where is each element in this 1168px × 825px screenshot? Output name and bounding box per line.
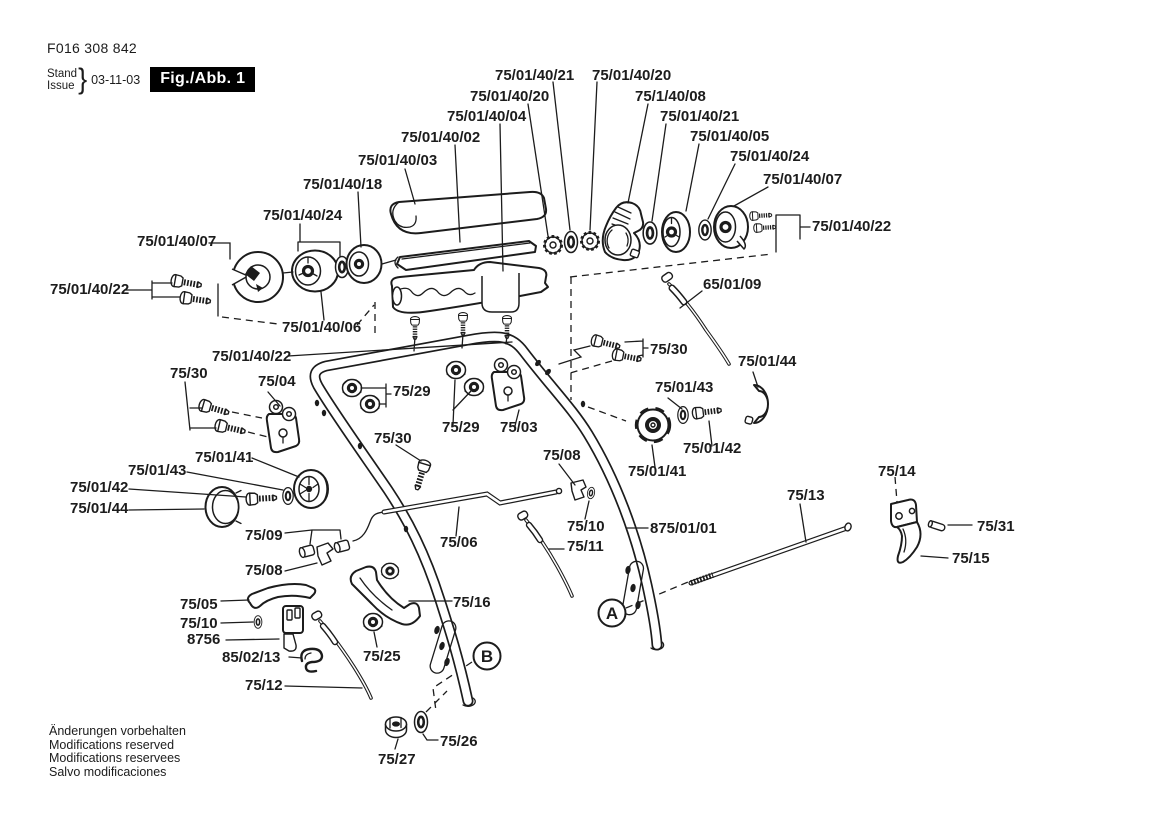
cam-lever-75-1-40-08 xyxy=(603,202,643,260)
part-label: 75/01/40/05 xyxy=(690,128,769,145)
part-label: 75/01/43 xyxy=(128,462,186,479)
part-label: 85/02/13 xyxy=(222,649,280,666)
cap-75-01-44-right xyxy=(745,385,768,424)
part-label: 75/25 xyxy=(363,648,401,665)
end-pulley-75-01-40-07b xyxy=(714,206,748,249)
svg-text:A: A xyxy=(606,604,618,623)
part-label: 75/01/41 xyxy=(195,449,253,466)
footer-line-fr: Modifications reservees xyxy=(49,752,186,766)
part-label: 75/01/40/03 xyxy=(358,152,437,169)
part-label: 75/03 xyxy=(500,419,538,436)
ring-75-10-left xyxy=(254,616,262,629)
part-label: 75/01/42 xyxy=(70,479,128,496)
part-label: 75/01/44 xyxy=(70,500,129,517)
screw-75-01-40-22-left xyxy=(170,274,202,291)
knob-75-01-41-right xyxy=(637,409,670,442)
knob-75-01-41-left xyxy=(294,470,328,508)
cap-75-01-44-left xyxy=(206,487,242,527)
washer-75-01-40-24b xyxy=(699,220,711,240)
part-label: 75/06 xyxy=(440,534,478,551)
roller-75-01-40-05 xyxy=(662,212,690,252)
part-label: 75/30 xyxy=(650,341,688,358)
part-label: 65/01/09 xyxy=(703,276,761,293)
part-label: 75/01/41 xyxy=(628,463,686,480)
washer-75-26 xyxy=(415,712,428,733)
footer-line-en: Modifications reserved xyxy=(49,739,186,753)
part-label: 75/31 xyxy=(977,518,1015,535)
part-label: 75/01/40/24 xyxy=(263,207,343,224)
part-label: 75/01/44 xyxy=(738,353,797,370)
screw-75-01-40-22-left2 xyxy=(179,291,211,307)
screw-75-01-40-22-a xyxy=(411,317,420,340)
view-marker-A: A xyxy=(599,600,626,627)
screw-75-01-40-22-r1 xyxy=(750,211,772,221)
footer-line-es: Salvo modificaciones xyxy=(49,766,186,780)
nut-75-29-a xyxy=(343,380,362,397)
part-label: 75/13 xyxy=(787,487,825,504)
cable-75-12 xyxy=(311,610,371,698)
part-label: 8756 xyxy=(187,631,220,648)
part-label: 75/29 xyxy=(442,419,480,436)
part-label: 75/26 xyxy=(440,733,478,750)
washer-75-01-40-21b xyxy=(643,222,657,244)
part-labels-layer: 75/01/40/2175/01/40/2075/01/40/2075/1/40… xyxy=(50,67,1015,768)
part-label: 75/01/40/07 xyxy=(763,171,842,188)
bracket-75-16-group xyxy=(351,563,420,630)
nut-75-25 xyxy=(364,614,383,631)
part-label: 75/01/40/21 xyxy=(495,67,574,84)
part-label: 75/29 xyxy=(393,383,431,400)
part-label: 75/01/43 xyxy=(655,379,713,396)
part-label: 75/09 xyxy=(245,527,283,544)
part-label: 75/04 xyxy=(258,373,296,390)
part-label: 75/01/40/24 xyxy=(730,148,810,165)
screw-75-01-42-right xyxy=(692,405,722,420)
part-label: 75/14 xyxy=(878,463,916,480)
part-label: 75/01/40/21 xyxy=(660,108,739,125)
part-label: 75/08 xyxy=(543,447,581,464)
screw-75-30-left1 xyxy=(198,399,231,419)
clamp-75-03 xyxy=(492,359,524,411)
part-label: 75/01/40/06 xyxy=(282,319,361,336)
nut-75-29-b xyxy=(361,396,380,413)
nut-75-29-c xyxy=(447,362,466,379)
clip-75-08-mid xyxy=(571,480,596,500)
nut-on-tube xyxy=(381,563,398,578)
screw-75-01-40-22-b xyxy=(459,313,468,336)
svg-text:B: B xyxy=(481,647,493,666)
screw-75-01-40-22-r2 xyxy=(754,223,776,233)
ferrules-75-09 xyxy=(285,530,350,565)
part-label: 75/01/40/18 xyxy=(303,176,382,193)
roller-75-01-40-18 xyxy=(347,245,382,283)
part-label: 75/11 xyxy=(567,538,604,555)
part-label: 75/01/40/20 xyxy=(470,88,549,105)
part-label: 75/16 xyxy=(453,594,491,611)
star-washer-75-01-40-20b xyxy=(582,233,599,250)
screw-75-01-42-left xyxy=(246,492,277,506)
clip-85-02-13 xyxy=(301,649,322,672)
washer-75-01-43-right xyxy=(678,407,688,424)
part-label: 875/01/01 xyxy=(650,520,717,537)
rod-75-13-group xyxy=(691,500,946,583)
part-label: 75/01/40/22 xyxy=(212,348,291,365)
view-marker-B: B xyxy=(474,643,501,670)
part-label: 75/05 xyxy=(180,596,218,613)
page-footer: Änderungen vorbehalten Modifications res… xyxy=(49,725,186,779)
ferrule-75-10-mid xyxy=(586,487,595,500)
view-markers-layer: AB xyxy=(474,600,626,670)
star-washer-75-01-40-20 xyxy=(545,237,562,254)
roller-75-01-40-24 xyxy=(292,251,338,292)
clip-75-08-left xyxy=(317,543,333,565)
parts-diagram-page: F016 308 842 Stand Issue } 03-11-03 Fig.… xyxy=(0,0,1168,825)
footer-line-de: Änderungen vorbehalten xyxy=(49,725,186,739)
part-label: 75/30 xyxy=(170,365,208,382)
part-label: 75/10 xyxy=(567,518,605,535)
part-label: 75/10 xyxy=(180,615,218,632)
part-label: 75/01/40/22 xyxy=(50,281,129,298)
part-label: 75/01/40/04 xyxy=(447,108,527,125)
washer-75-01-43-left xyxy=(283,488,293,505)
cap-75-01-40-07 xyxy=(232,252,283,302)
screw-75-30-right2 xyxy=(611,348,642,365)
nut-75-27-washer-75-26 xyxy=(386,712,428,738)
pin-75-31 xyxy=(928,520,946,531)
screw-75-30-left2 xyxy=(214,419,246,438)
nut-75-29-d xyxy=(465,379,484,396)
part-label: 75/1/40/08 xyxy=(635,88,706,105)
part-label: 75/01/40/07 xyxy=(137,233,216,250)
part-label: 75/30 xyxy=(374,430,412,447)
bracket-8756 xyxy=(284,634,296,651)
screw-75-30-mid xyxy=(411,459,431,492)
part-label: 75/01/40/22 xyxy=(812,218,891,235)
cable-75-11 xyxy=(517,510,572,596)
part-label: 75/08 xyxy=(245,562,283,579)
exploded-parts-drawing: 75/01/40/2175/01/40/2075/01/40/2075/1/40… xyxy=(0,0,1168,825)
handle-75-14-75-15 xyxy=(891,500,921,563)
part-label: 75/12 xyxy=(245,677,283,694)
part-label: 75/15 xyxy=(952,550,990,567)
part-label: 75/01/40/20 xyxy=(592,67,671,84)
part-label: 75/01/42 xyxy=(683,440,741,457)
part-label: 75/01/40/02 xyxy=(401,129,480,146)
part-label: 75/27 xyxy=(378,751,416,768)
washer-75-01-40-21 xyxy=(565,232,578,253)
clamp-75-04 xyxy=(267,401,299,453)
